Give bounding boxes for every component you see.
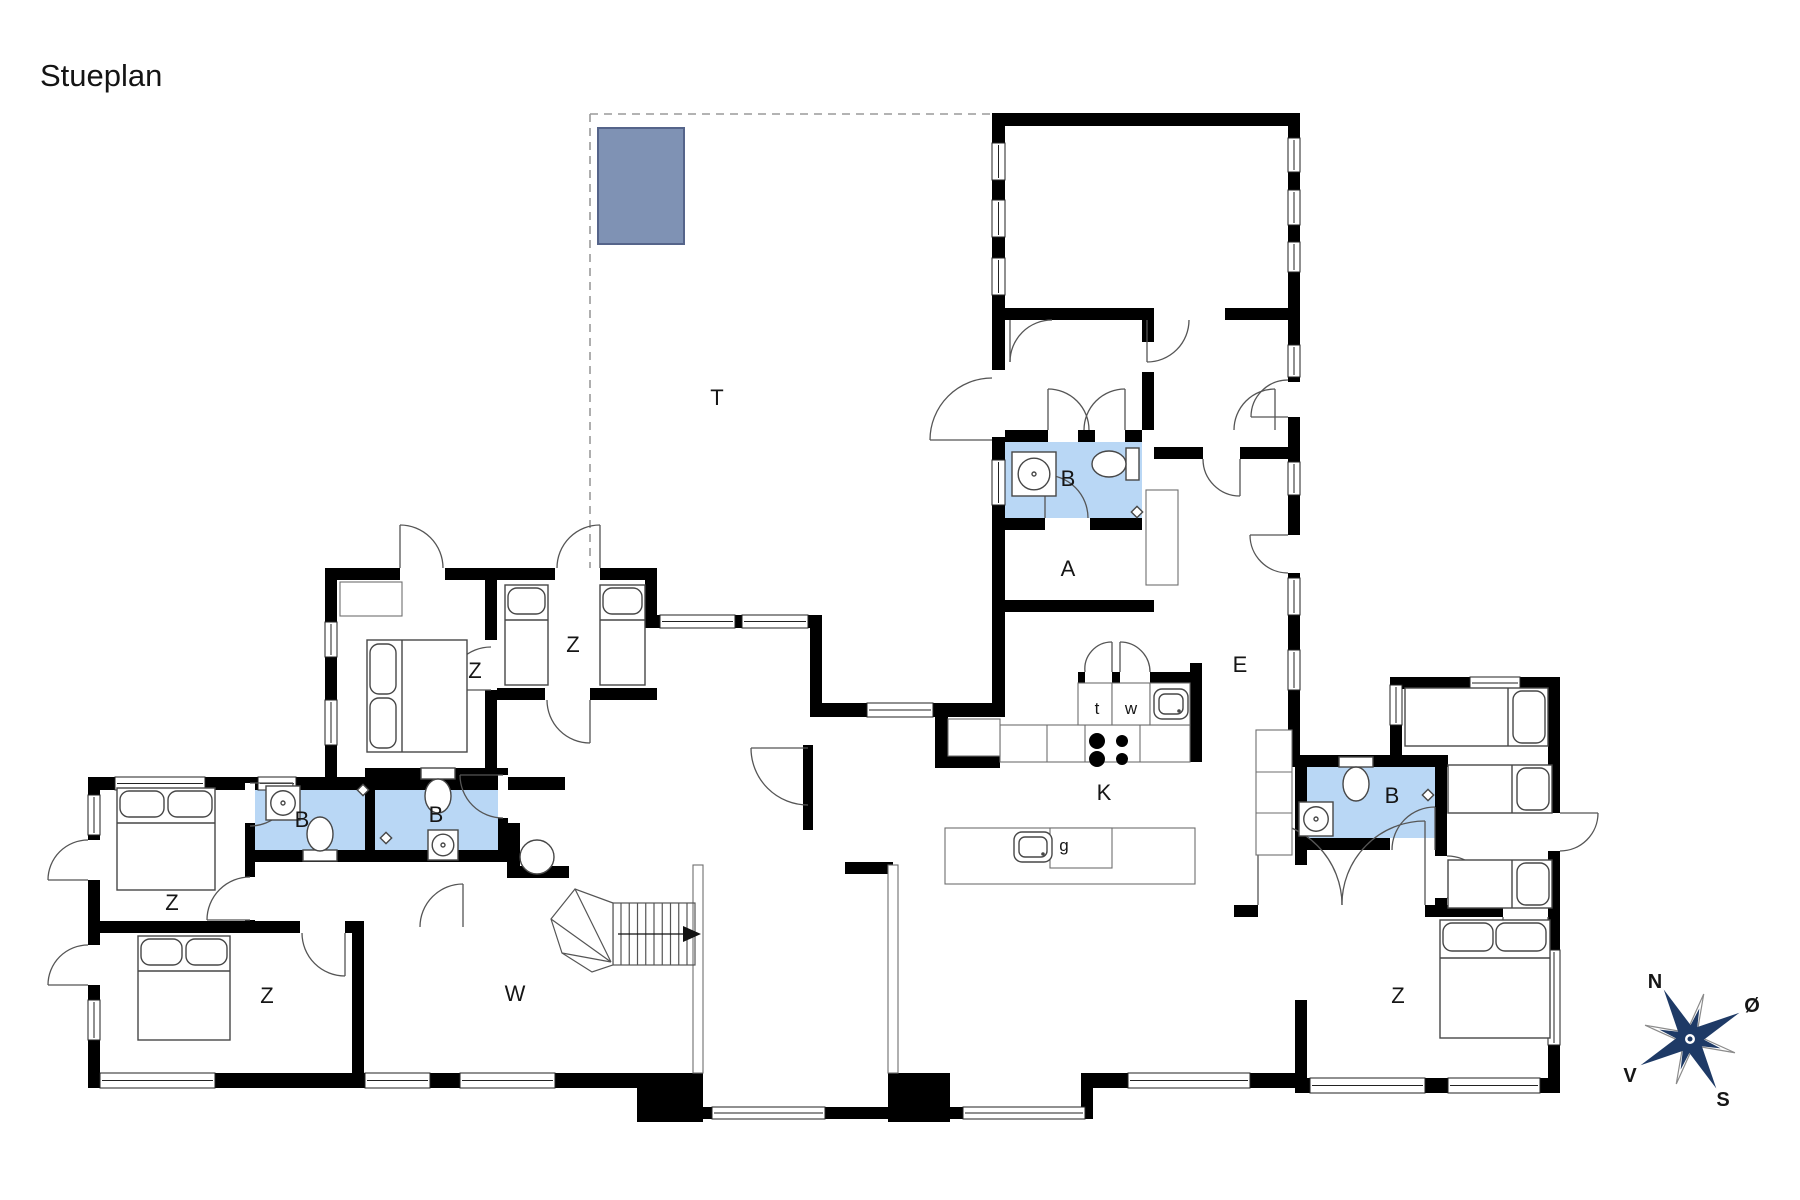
compass-south-label: S [1716,1089,1729,1111]
windows-layer [88,138,1560,1119]
staircase [551,889,701,972]
door-swing-icon [420,884,463,927]
door-swing-icon [1048,389,1089,430]
table-icon [520,840,554,874]
shower-icon [428,830,458,860]
door-swing-icon [1084,389,1125,430]
stove-burner-icon [1089,751,1105,767]
compass-east-label: Ø [1744,995,1760,1017]
sink-icon [1154,689,1188,719]
room-label-bedroom-east: Z [1391,983,1404,1008]
sink-icon [1014,832,1052,862]
room-label-bathroom-west-1: B [295,807,310,832]
door-swing-icon [400,525,443,568]
furniture-outline [948,719,1000,756]
door-swing-icon [1234,389,1275,430]
door-swing-icon [1203,459,1240,496]
room-labels: T Z Z Z Z Z B B B B A E K t w g W [165,385,1404,1008]
furniture-outline [888,865,898,1073]
furniture-outline [693,865,703,1073]
page-title: Stueplan [40,58,162,94]
furniture-outline [340,582,402,616]
door-swing-icon [1250,535,1288,573]
floor-plan-page: Stueplan [0,0,1800,1200]
compass-west-label: V [1623,1065,1637,1087]
door-swing-icon [1085,642,1112,672]
bed-icon [138,936,230,1040]
door-swing-icon [48,840,88,880]
bed-icon [1405,688,1548,746]
door-swing-icon [48,945,88,985]
door-swing-icon [1251,380,1288,417]
door-swing-icon [1010,320,1052,362]
room-label-bedroom-upper-left: Z [468,658,481,683]
shower-icon [1299,802,1333,836]
door-swing-icon [1120,642,1150,672]
shower-icon [1012,452,1056,496]
room-label-room-a: A [1061,556,1076,581]
furniture-outline [1146,490,1178,585]
room-label-bedroom-upper-right: Z [566,632,579,657]
room-label-bathroom-north: B [1061,466,1076,491]
room-label-bathroom-east: B [1385,783,1400,808]
compass-north-label: N [1648,971,1662,993]
bed-icon [600,585,645,685]
terrace-outline [590,114,992,570]
door-swing-icon [302,933,345,976]
room-label-entrance: E [1233,652,1248,677]
toilet-icon [1092,448,1139,480]
door-swing-icon [1560,813,1598,851]
bed-icon [1448,765,1552,813]
bed-icon [117,788,215,890]
door-swing-icon [547,700,590,743]
floor-plan-svg: N Ø S V T Z Z Z Z Z B B B B A E K t w g … [0,0,1800,1200]
door-swing-icon [751,748,808,805]
room-label-bedroom-west-top: Z [165,890,178,915]
door-gaps-layer [88,370,1560,985]
room-label-washroom-w: w [1124,699,1138,718]
stove-burner-icon [1116,735,1128,747]
room-label-island-g: g [1059,836,1068,855]
bed-icon [1448,860,1552,908]
bed-icon [367,640,467,752]
door-swing-icon [930,378,992,440]
bed-icon [505,585,548,685]
hot-tub [598,128,684,244]
room-label-toilet-t: t [1095,699,1100,718]
stove-burner-icon [1116,753,1128,765]
room-label-kitchen: K [1097,780,1112,805]
room-label-living: W [505,981,526,1006]
door-swing-icon [557,525,600,568]
stove-burner-icon [1089,733,1105,749]
door-swings-layer [48,320,1598,985]
furniture-outline [1256,730,1292,855]
room-label-bedroom-west-bottom: Z [260,983,273,1008]
room-label-bathroom-west-2: B [429,802,444,827]
room-label-terrace: T [710,385,723,410]
compass-rose: N Ø S V [1614,963,1765,1114]
walls-layer [88,113,1560,1122]
bed-icon [1440,920,1550,1038]
